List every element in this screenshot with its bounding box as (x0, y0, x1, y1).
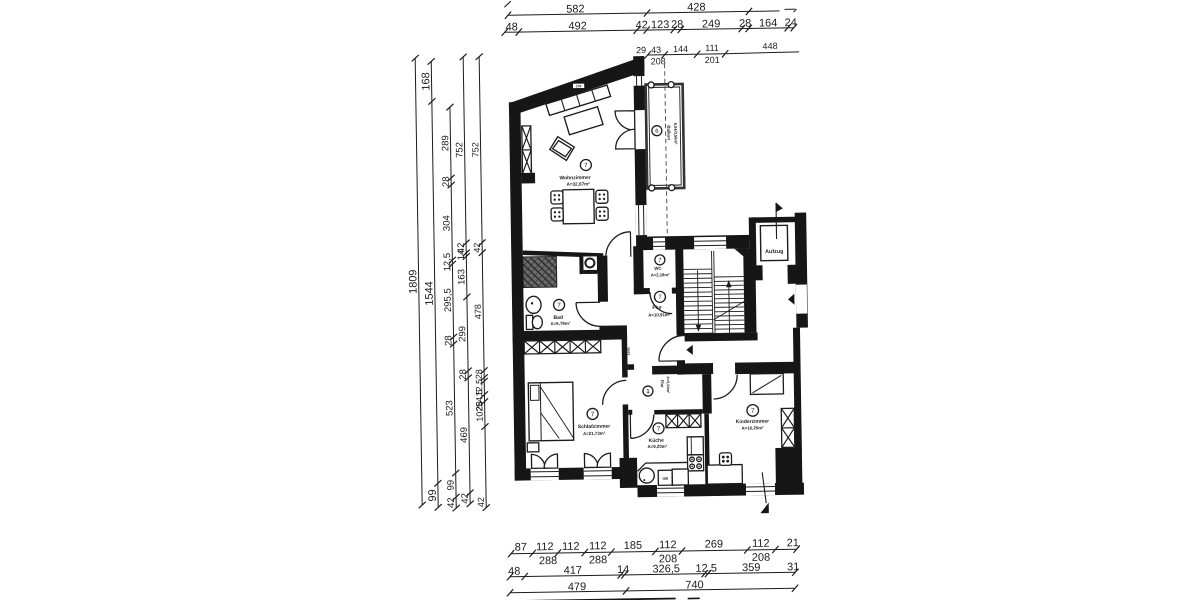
svg-text:428: 428 (687, 1, 706, 13)
svg-text:A=5,04m²: A=5,04m² (666, 376, 670, 394)
svg-text:6,54/3,56m²: 6,54/3,56m² (673, 123, 678, 145)
svg-text:203: 203 (576, 84, 582, 88)
svg-text:7: 7 (751, 408, 755, 415)
svg-text:Flur: Flur (652, 305, 662, 311)
svg-text:523: 523 (444, 400, 455, 416)
svg-text:48: 48 (505, 21, 517, 33)
svg-text:752: 752 (470, 142, 480, 157)
svg-text:752: 752 (454, 142, 465, 158)
svg-text:299: 299 (457, 326, 468, 342)
svg-text:582: 582 (566, 3, 585, 15)
svg-text:492: 492 (568, 20, 587, 32)
svg-text:87: 87 (515, 541, 527, 553)
svg-text:99: 99 (446, 480, 457, 491)
svg-text:469: 469 (459, 427, 470, 443)
svg-text:112: 112 (536, 541, 554, 553)
svg-text:Wohnzimmer: Wohnzimmer (559, 175, 590, 181)
svg-text:12,5: 12,5 (695, 562, 717, 574)
svg-text:A=2,18m²: A=2,18m² (651, 272, 670, 277)
svg-text:99: 99 (427, 489, 439, 501)
svg-text:A=32,87m²: A=32,87m² (567, 181, 591, 186)
svg-text:14: 14 (617, 564, 629, 576)
svg-text:288: 288 (539, 555, 558, 567)
svg-text:42: 42 (476, 497, 486, 507)
svg-text:Aufzug: Aufzug (765, 249, 783, 255)
svg-text:1809: 1809 (407, 269, 419, 294)
svg-text:295,5: 295,5 (443, 288, 454, 312)
svg-text:43: 43 (651, 45, 661, 55)
svg-text:42: 42 (472, 243, 482, 253)
svg-text:112: 112 (589, 540, 607, 552)
svg-text:478: 478 (473, 304, 483, 319)
svg-text:28: 28 (739, 18, 751, 30)
svg-text:12,5: 12,5 (442, 253, 453, 272)
svg-text:249: 249 (702, 18, 721, 30)
svg-text:WC: WC (654, 266, 662, 271)
svg-text:112: 112 (562, 541, 580, 553)
svg-text:Schlafzimmer: Schlafzimmer (578, 424, 611, 431)
svg-text:A=10,91m²: A=10,91m² (648, 312, 671, 317)
svg-text:42: 42 (460, 493, 471, 504)
svg-text:740: 740 (685, 579, 704, 591)
svg-text:288: 288 (589, 554, 608, 566)
svg-text:A=9,20m²: A=9,20m² (647, 444, 667, 449)
svg-text:144: 144 (673, 44, 688, 54)
svg-text:164: 164 (759, 17, 778, 29)
svg-text:14: 14 (456, 250, 467, 261)
svg-text:28: 28 (458, 369, 469, 380)
svg-text:21: 21 (787, 537, 799, 549)
svg-text:326,5: 326,5 (652, 563, 680, 575)
svg-text:GB: GB (662, 477, 668, 481)
svg-text:48: 48 (508, 566, 520, 578)
svg-text:208: 208 (651, 56, 666, 66)
svg-text:28: 28 (671, 19, 683, 31)
svg-text:31: 31 (787, 561, 799, 573)
svg-text:A=6,78m²: A=6,78m² (550, 321, 570, 326)
svg-text:289: 289 (440, 135, 451, 151)
svg-text:112: 112 (752, 538, 770, 550)
svg-text:168: 168 (420, 72, 432, 91)
svg-text:448: 448 (762, 41, 777, 51)
svg-text:359: 359 (742, 562, 761, 574)
svg-text:24: 24 (784, 17, 796, 29)
svg-text:417: 417 (564, 565, 583, 577)
svg-text:185: 185 (624, 540, 643, 552)
svg-text:Kinderzimmer: Kinderzimmer (736, 419, 769, 426)
svg-text:201: 201 (705, 55, 720, 65)
svg-text:28: 28 (474, 369, 484, 379)
svg-text:42: 42 (635, 19, 647, 31)
svg-text:123: 123 (651, 19, 670, 31)
svg-text:1544: 1544 (423, 281, 435, 306)
svg-text:304: 304 (441, 215, 452, 231)
svg-text:111: 111 (705, 43, 719, 53)
svg-text:28: 28 (441, 176, 452, 187)
svg-text:479: 479 (568, 581, 587, 593)
svg-text:1545: 1545 (627, 347, 631, 355)
svg-text:29: 29 (636, 45, 646, 55)
svg-text:Balkon: Balkon (666, 125, 671, 140)
svg-text:A=16,25m²: A=16,25m² (741, 425, 764, 430)
svg-text:42: 42 (446, 497, 457, 508)
svg-text:102: 102 (474, 407, 484, 422)
svg-text:28: 28 (443, 335, 454, 346)
svg-text:A=21,73m²: A=21,73m² (583, 431, 606, 436)
svg-text:Flur: Flur (660, 380, 665, 388)
svg-text:163: 163 (456, 269, 467, 285)
svg-text:269: 269 (705, 538, 724, 550)
svg-text:112: 112 (659, 539, 677, 551)
